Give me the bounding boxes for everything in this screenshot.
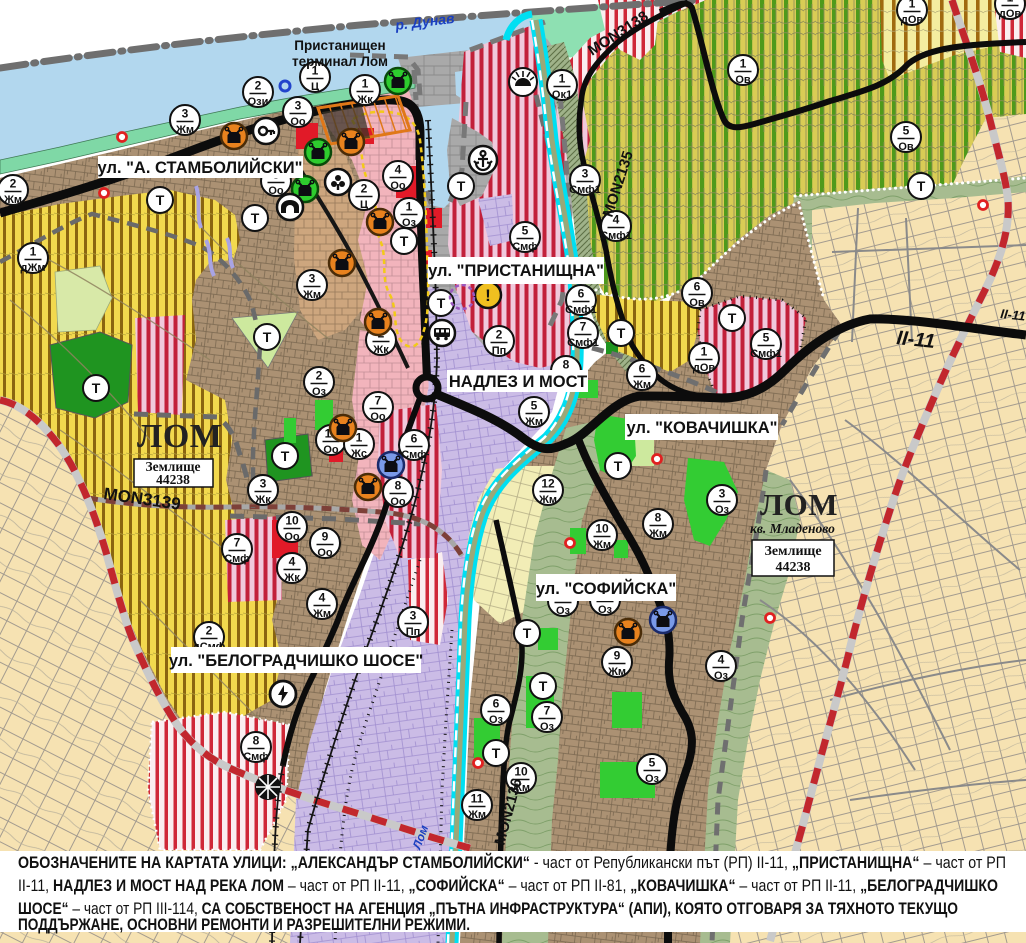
svg-text:Жм: Жм [175,124,194,136]
svg-text:Оо: Оо [284,531,300,543]
svg-text:Пп: Пп [492,345,507,357]
svg-text:ул. "ПРИСТАНИЩНА": ул. "ПРИСТАНИЩНА" [428,262,604,280]
svg-text:ул. "КОВАЧИШКА": ул. "КОВАЧИШКА" [627,419,778,437]
svg-text:Смф1: Смф1 [565,304,597,316]
svg-text:ЛОМ: ЛОМ [137,418,222,455]
svg-text:1: 1 [701,345,708,359]
svg-text:Смф: Смф [401,449,427,461]
svg-text:Смф: Смф [224,553,250,565]
svg-text:Т: Т [457,178,466,194]
svg-text:ПОДДЪРЖАНЕ, ОСНОВНИ РЕМОНТИ И: ПОДДЪРЖАНЕ, ОСНОВНИ РЕМОНТИ И РАЗРЕШИТЕЛ… [18,916,470,934]
svg-text:4: 4 [289,555,296,569]
svg-text:6: 6 [694,280,701,294]
svg-text:2: 2 [316,369,323,383]
svg-text:Жк: Жк [283,572,300,584]
svg-text:6: 6 [639,362,646,376]
svg-text:Жм: Жм [3,194,22,206]
svg-text:Оз: Оз [312,386,327,398]
svg-text:12: 12 [541,477,555,491]
svg-text:Ов: Ов [898,141,914,153]
svg-text:8: 8 [253,734,260,748]
svg-text:Жм: Жм [592,539,611,551]
svg-text:Т: Т [156,192,165,208]
svg-text:9: 9 [322,530,329,544]
svg-text:Т: Т [281,448,290,464]
svg-text:Оо: Оо [390,180,406,192]
svg-text:Оз: Оз [714,670,729,682]
svg-text:Жм: Жм [302,289,321,301]
svg-text:Т: Т [263,329,272,345]
svg-text:1: 1 [362,77,369,91]
svg-text:Жк: Жк [372,344,389,356]
svg-text:Т: Т [92,380,101,396]
svg-text:Смф1: Смф1 [569,184,601,196]
svg-text:8: 8 [395,479,402,493]
svg-text:3: 3 [582,167,589,181]
svg-text:Оо: Оо [268,185,284,197]
svg-text:Оз: Оз [556,605,571,617]
svg-text:Т: Т [917,178,926,194]
svg-text:Жк: Жк [356,94,373,106]
svg-text:ул. "СОФИЙСКА": ул. "СОФИЙСКА" [536,579,676,598]
svg-text:8: 8 [655,511,662,525]
svg-text:Т: Т [492,745,501,761]
svg-text:1: 1 [1007,0,1014,5]
svg-text:6: 6 [493,697,500,711]
svg-text:Жс: Жс [350,448,367,460]
svg-text:8: 8 [563,358,570,372]
svg-text:II-11: II-11 [895,327,936,353]
svg-text:5: 5 [522,224,529,238]
svg-text:Жк: Жк [254,494,271,506]
svg-text:Жм: Жм [467,809,486,821]
svg-text:5: 5 [903,124,910,138]
svg-text:Ов: Ов [735,74,751,86]
svg-text:3: 3 [309,272,316,286]
svg-text:Пп: Пп [406,626,421,638]
svg-text:2: 2 [10,177,17,191]
svg-text:Т: Т [614,458,623,474]
svg-text:Оз: Оз [540,721,555,733]
svg-text:2: 2 [496,328,503,342]
svg-text:1: 1 [406,200,413,214]
svg-text:Смф1: Смф1 [600,230,632,242]
svg-text:дОв: дОв [693,362,716,374]
svg-text:кв. Младеново: кв. Младеново [750,521,835,536]
svg-text:44238: 44238 [776,560,811,575]
svg-text:1: 1 [30,245,37,259]
svg-text:Т: Т [728,310,737,326]
svg-text:Оо: Оо [317,547,333,559]
svg-text:Жм: Жм [524,416,543,428]
svg-text:1: 1 [909,0,916,11]
svg-text:2: 2 [361,182,368,196]
svg-text:6: 6 [411,432,418,446]
svg-text:Ц: Ц [311,81,319,93]
svg-text:Оз: Оз [489,714,504,726]
svg-text:Смф: Смф [512,241,538,253]
svg-text:Ц: Ц [360,199,368,211]
svg-text:Смф1: Смф1 [750,348,782,360]
svg-text:!: ! [485,286,491,305]
svg-text:Т: Т [617,325,626,341]
svg-text:3: 3 [295,99,302,113]
svg-text:3: 3 [182,107,189,121]
svg-text:3: 3 [410,609,417,623]
svg-text:Смф: Смф [243,751,269,763]
svg-text:Жм: Жм [648,528,667,540]
svg-text:3: 3 [260,477,267,491]
svg-text:Т: Т [400,233,409,249]
svg-text:Т: Т [523,625,532,641]
svg-text:2: 2 [255,79,262,93]
svg-text:ЛОМ: ЛОМ [760,487,838,522]
svg-text:5: 5 [531,399,538,413]
svg-text:Оо: Оо [370,411,386,423]
svg-text:4: 4 [395,163,402,177]
svg-text:Ов: Ов [689,297,705,309]
svg-text:дОв: дОв [901,14,924,26]
svg-text:Землище: Землище [764,544,821,559]
svg-text:10: 10 [514,765,528,779]
svg-text:Жм: Жм [312,608,331,620]
svg-text:5: 5 [763,331,770,345]
svg-text:44238: 44238 [156,472,190,487]
svg-text:Оз: Оз [645,773,660,785]
svg-text:Оо: Оо [390,496,406,508]
svg-text:5: 5 [649,756,656,770]
svg-text:7: 7 [234,536,241,550]
svg-text:7: 7 [375,394,382,408]
svg-text:Т: Т [437,295,446,311]
svg-text:Оо: Оо [290,116,306,128]
svg-text:дЖм: дЖм [20,262,45,274]
svg-text:1: 1 [356,431,363,445]
svg-text:II-11: II-11 [1000,306,1026,324]
svg-text:Жм: Жм [632,379,651,391]
svg-text:НАДЛЕЗ И МОСТ: НАДЛЕЗ И МОСТ [449,373,587,391]
svg-text:II-11, НАДЛЕЗ И МОСТ НАД РЕКА: II-11, НАДЛЕЗ И МОСТ НАД РЕКА ЛОМ – част… [18,876,998,895]
svg-text:9: 9 [614,649,621,663]
svg-text:3: 3 [719,487,726,501]
svg-text:4: 4 [319,591,326,605]
svg-text:ул. "БЕЛОГРАДЧИШКО ШОСЕ": ул. "БЕЛОГРАДЧИШКО ШОСЕ" [169,652,423,670]
svg-text:6: 6 [578,287,585,301]
svg-text:ул. "А. СТАМБОЛИЙСКИ": ул. "А. СТАМБОЛИЙСКИ" [98,158,303,177]
svg-text:Жм: Жм [607,666,626,678]
svg-text:Жм: Жм [538,494,557,506]
svg-text:2: 2 [206,624,213,638]
svg-text:7: 7 [544,704,551,718]
svg-text:10: 10 [285,514,299,528]
svg-text:Оз: Оз [715,504,730,516]
svg-text:Ози: Ози [248,96,269,108]
svg-text:11: 11 [471,792,484,806]
svg-text:4: 4 [718,653,725,667]
svg-text:1: 1 [740,57,747,71]
svg-text:Т: Т [539,678,548,694]
svg-text:дОв: дОв [999,8,1022,20]
svg-text:Ок1: Ок1 [552,89,572,101]
svg-text:Оз: Оз [598,604,613,616]
svg-text:Смф1: Смф1 [567,337,599,349]
svg-text:Пристанищен: Пристанищен [294,38,385,53]
svg-text:терминал Лом: терминал Лом [292,54,388,69]
svg-text:Т: Т [251,210,260,226]
svg-text:Оо: Оо [323,444,339,456]
svg-text:ОБОЗНАЧЕНИТЕ НА КАРТАТА УЛИЦИ:: ОБОЗНАЧЕНИТЕ НА КАРТАТА УЛИЦИ: „АЛЕКСАНД… [18,853,1006,872]
svg-text:10: 10 [595,522,609,536]
svg-text:1: 1 [559,72,566,86]
svg-text:7: 7 [580,320,587,334]
